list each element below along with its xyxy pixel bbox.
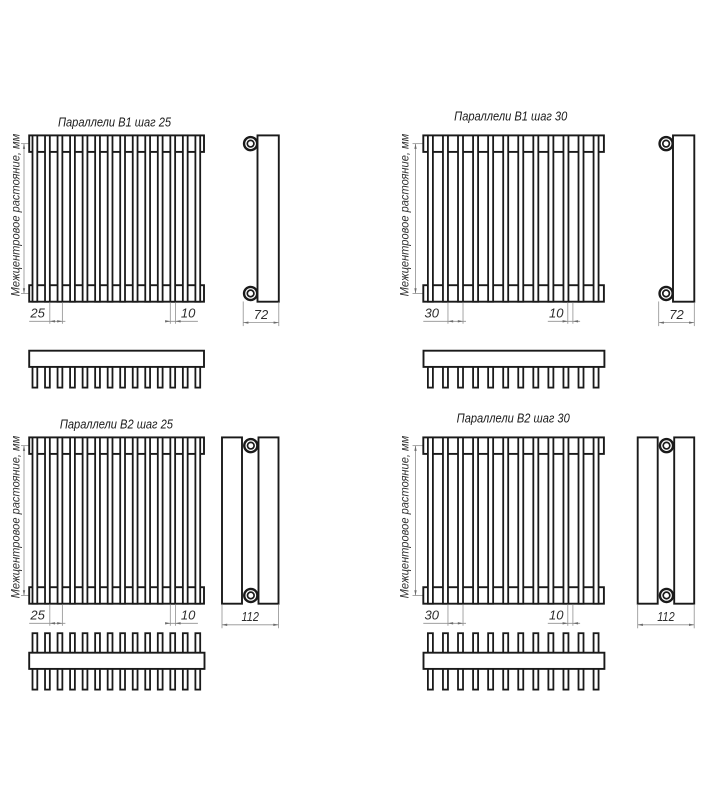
svg-text:30: 30 [425, 306, 440, 321]
svg-text:Межцентровое растояние, мм: Межцентровое растояние, мм [10, 436, 22, 599]
svg-text:72: 72 [254, 307, 269, 322]
svg-text:Параллели В1 шаг 30: Параллели В1 шаг 30 [454, 108, 567, 123]
svg-text:72: 72 [669, 307, 684, 322]
svg-text:10: 10 [549, 608, 564, 623]
svg-text:112: 112 [242, 609, 260, 624]
svg-text:10: 10 [181, 306, 196, 321]
svg-text:30: 30 [425, 608, 440, 623]
svg-text:Межцентровое растояние, мм: Межцентровое растояние, мм [10, 134, 22, 297]
svg-text:25: 25 [29, 306, 45, 321]
svg-text:Параллели В2 шаг 25: Параллели В2 шаг 25 [60, 416, 173, 431]
svg-text:Параллели В2 шаг 30: Параллели В2 шаг 30 [457, 410, 570, 425]
svg-text:10: 10 [181, 608, 196, 623]
svg-text:10: 10 [549, 306, 564, 321]
svg-text:Межцентровое растояние, мм: Межцентровое растояние, мм [399, 436, 411, 599]
svg-text:Межцентровое растояние, мм: Межцентровое растояние, мм [399, 134, 411, 297]
svg-text:25: 25 [29, 608, 45, 623]
svg-text:112: 112 [657, 609, 675, 624]
svg-text:Параллели В1 шаг 25: Параллели В1 шаг 25 [58, 114, 171, 129]
